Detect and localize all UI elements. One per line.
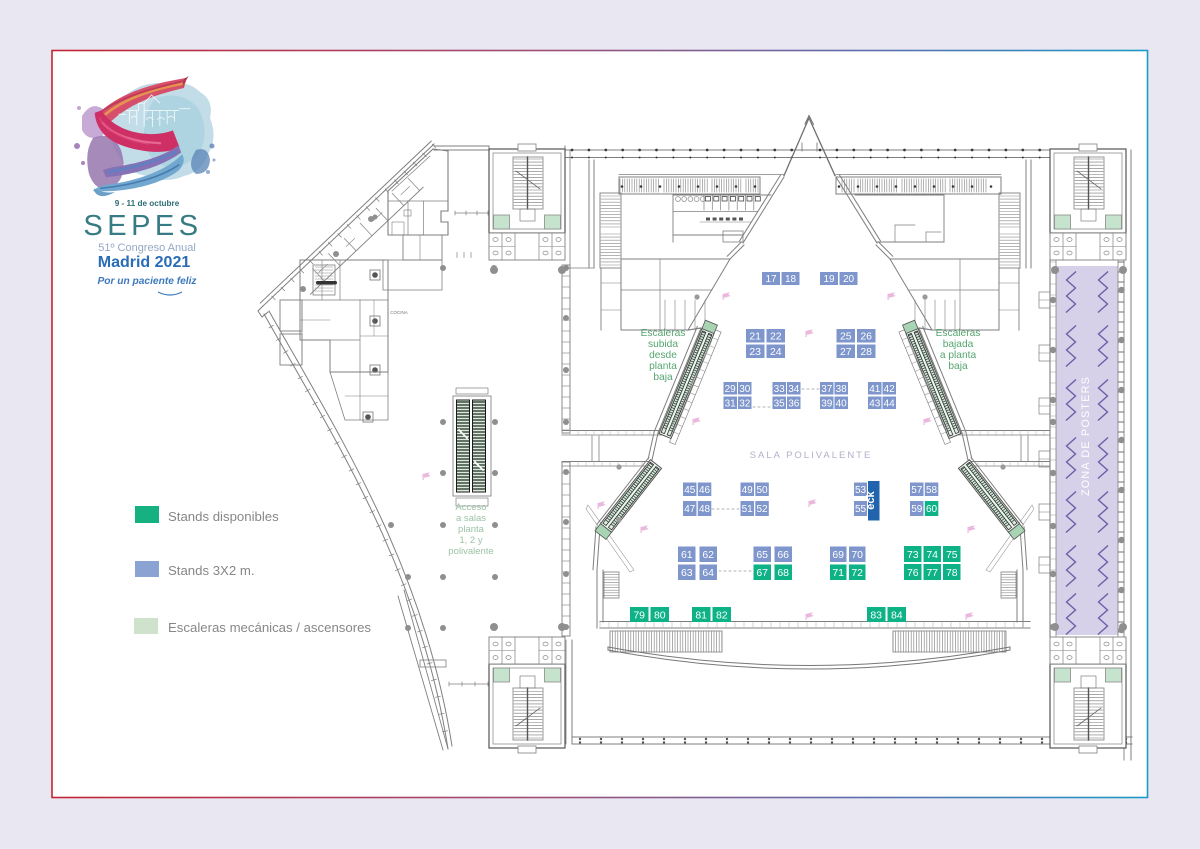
svg-text:9 - 11 de octubre: 9 - 11 de octubre: [115, 199, 180, 208]
svg-text:52: 52: [756, 504, 768, 515]
svg-text:38: 38: [836, 384, 848, 395]
svg-text:baja: baja: [948, 361, 968, 372]
svg-text:33: 33: [774, 384, 786, 395]
svg-text:45: 45: [684, 485, 696, 496]
svg-text:68: 68: [777, 567, 789, 579]
svg-text:46: 46: [699, 485, 711, 496]
svg-text:66: 66: [777, 549, 789, 561]
svg-text:58: 58: [926, 485, 938, 496]
svg-text:Escaleras: Escaleras: [641, 328, 686, 339]
svg-text:57: 57: [911, 485, 923, 496]
svg-text:48: 48: [699, 504, 711, 515]
svg-text:84: 84: [891, 609, 903, 621]
svg-text:Por un paciente feliz: Por un paciente feliz: [97, 276, 197, 287]
svg-text:COCINA: COCINA: [390, 310, 408, 315]
svg-text:67: 67: [756, 567, 768, 579]
svg-text:23: 23: [749, 346, 761, 358]
svg-text:41: 41: [869, 384, 881, 395]
svg-text:71: 71: [832, 567, 844, 579]
svg-text:83: 83: [870, 609, 882, 621]
svg-text:51º Congreso Anual: 51º Congreso Anual: [98, 242, 196, 254]
svg-text:22: 22: [770, 331, 782, 343]
svg-text:planta: planta: [649, 361, 677, 372]
svg-text:Escaleras: Escaleras: [936, 328, 981, 339]
svg-text:Acceso: Acceso: [455, 502, 486, 513]
svg-text:31: 31: [725, 398, 737, 409]
svg-text:32: 32: [739, 398, 751, 409]
svg-text:36: 36: [788, 398, 800, 409]
svg-text:Stands disponibles: Stands disponibles: [168, 509, 279, 524]
svg-text:28: 28: [860, 346, 872, 358]
svg-text:51: 51: [742, 504, 754, 515]
svg-text:bajada: bajada: [943, 339, 974, 350]
svg-text:78: 78: [946, 567, 958, 579]
svg-text:desde: desde: [649, 350, 677, 361]
svg-text:27: 27: [840, 346, 852, 358]
svg-text:64: 64: [702, 567, 714, 579]
svg-text:62: 62: [702, 549, 714, 561]
svg-text:eck: eck: [865, 490, 877, 509]
svg-text:ZONA DE POSTERS: ZONA DE POSTERS: [1080, 376, 1092, 496]
svg-text:80: 80: [654, 609, 666, 621]
svg-text:SALA POLIVALENTE: SALA POLIVALENTE: [750, 450, 873, 461]
svg-text:Madrid 2021: Madrid 2021: [98, 254, 191, 271]
svg-text:39: 39: [821, 398, 833, 409]
svg-text:76: 76: [907, 567, 919, 579]
svg-text:72: 72: [851, 567, 863, 579]
svg-text:17: 17: [765, 274, 777, 285]
svg-text:18: 18: [785, 274, 797, 285]
svg-text:a salas: a salas: [456, 513, 486, 524]
svg-text:49: 49: [742, 485, 754, 496]
svg-text:a planta: a planta: [940, 350, 977, 361]
svg-text:37: 37: [821, 384, 833, 395]
svg-text:Stands 3X2 m.: Stands 3X2 m.: [168, 563, 255, 578]
svg-text:74: 74: [926, 549, 938, 561]
svg-text:63: 63: [681, 567, 693, 579]
svg-text:34: 34: [788, 384, 800, 395]
svg-text:SEPES: SEPES: [83, 210, 202, 242]
svg-text:65: 65: [756, 549, 768, 561]
svg-text:24: 24: [770, 346, 782, 358]
svg-text:70: 70: [851, 549, 863, 561]
svg-text:25: 25: [840, 331, 852, 343]
svg-text:77: 77: [926, 567, 938, 579]
svg-text:subida: subida: [648, 339, 678, 350]
svg-text:20: 20: [843, 274, 855, 285]
svg-text:61: 61: [681, 549, 693, 561]
svg-text:29: 29: [725, 384, 737, 395]
svg-text:35: 35: [774, 398, 786, 409]
svg-text:73: 73: [907, 549, 919, 561]
svg-text:baja: baja: [653, 372, 673, 383]
svg-text:47: 47: [684, 504, 696, 515]
svg-text:60: 60: [926, 504, 938, 515]
svg-text:43: 43: [869, 398, 881, 409]
svg-text:1, 2 y: 1, 2 y: [459, 535, 482, 546]
svg-text:planta: planta: [458, 524, 485, 535]
svg-text:21: 21: [749, 331, 761, 343]
svg-text:44: 44: [884, 398, 896, 409]
svg-text:30: 30: [739, 384, 751, 395]
svg-text:82: 82: [716, 609, 728, 621]
svg-text:69: 69: [832, 549, 844, 561]
svg-text:19: 19: [823, 274, 835, 285]
svg-text:75: 75: [946, 549, 958, 561]
svg-text:polivalente: polivalente: [448, 546, 493, 557]
svg-text:Escaleras mecánicas / ascensor: Escaleras mecánicas / ascensores: [168, 620, 371, 635]
svg-text:59: 59: [911, 504, 923, 515]
svg-text:42: 42: [884, 384, 896, 395]
svg-text:81: 81: [695, 609, 707, 621]
svg-text:50: 50: [756, 485, 768, 496]
svg-text:40: 40: [836, 398, 848, 409]
svg-text:26: 26: [860, 331, 872, 343]
svg-text:79: 79: [633, 609, 645, 621]
